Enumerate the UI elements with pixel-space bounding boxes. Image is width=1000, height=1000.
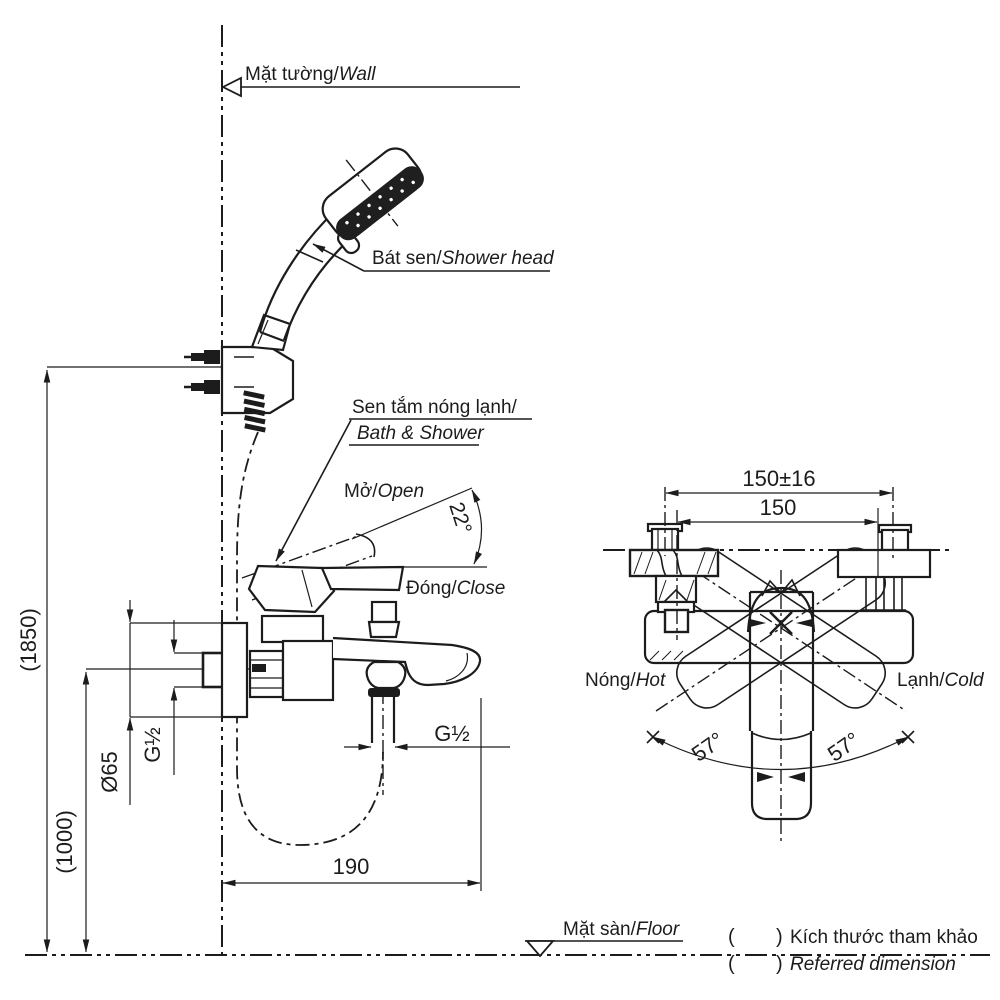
mixer-label-vi: Sen tắm nóng lạnh/	[352, 396, 518, 418]
dim-190-value: 190	[333, 854, 370, 879]
escutcheon	[222, 623, 247, 717]
dim-1000-value: (1000)	[52, 810, 77, 874]
connection-nut	[250, 651, 283, 697]
hot-label-vi: Nóng/	[585, 670, 636, 691]
mounting-screw-icon	[184, 380, 220, 394]
legend-paren-close: )	[776, 926, 783, 948]
faucet-installation-diagram: Mặt tường/Wall	[0, 0, 1000, 1000]
dimension-150: 150	[678, 495, 877, 522]
mixer-body-drawing	[86, 602, 480, 795]
spout-outlet-bell	[367, 662, 406, 688]
svg-text:Mặt sàn/Floor: Mặt sàn/Floor	[563, 919, 680, 940]
wall-arrow-icon	[223, 78, 241, 96]
mixer-label-en: Bath & Shower	[357, 423, 484, 444]
open-label-vi: Mở/	[344, 481, 378, 502]
dimension-150-16: 150±16	[666, 466, 892, 493]
swing-left-value: 57°	[687, 727, 729, 767]
dim-1850-value: (1850)	[16, 608, 41, 672]
svg-text:Mở/Open: Mở/Open	[344, 481, 424, 502]
top-view: 57° 57° 150±16 150 Nóng/Hot Lạnh/Cold	[585, 466, 985, 845]
legend-paren-close: )	[776, 953, 783, 975]
shower-head-drawing	[302, 128, 439, 261]
legend-paren-open: (	[728, 926, 735, 948]
dimension-dia65: Ø65	[97, 600, 224, 805]
shower-bracket	[47, 315, 293, 413]
dimension-g12-outlet: G½	[344, 721, 510, 747]
floor-level-icon	[527, 941, 553, 956]
dim-g12-outlet-value: G½	[434, 721, 469, 746]
swing-right-value: 57°	[823, 727, 865, 767]
svg-text:Lạnh/Cold: Lạnh/Cold	[897, 670, 985, 691]
close-label-vi: Đóng/	[406, 578, 457, 599]
legend-note-en: Referred dimension	[790, 954, 956, 975]
lever-handle-drawing: 22° Mở/Open Đóng/Close	[242, 481, 505, 612]
hot-label-en: Hot	[636, 670, 666, 691]
floor-label-en: Floor	[636, 919, 680, 940]
floor-label-vi: Mặt sàn/	[563, 919, 637, 940]
diverter-knob	[369, 602, 399, 637]
dim-150-value: 150	[760, 495, 797, 520]
dimension-1850: (1850)	[16, 370, 47, 952]
close-label-en: Close	[457, 578, 506, 599]
svg-text:Nóng/Hot: Nóng/Hot	[585, 670, 666, 691]
legend: ( ) Kích thước tham khảo ( ) Referred di…	[728, 926, 978, 975]
svg-text:Bát sen/Shower head: Bát sen/Shower head	[372, 248, 555, 269]
open-angle-value: 22°	[444, 499, 476, 536]
wall-label-vi: Mặt tường/	[245, 64, 340, 85]
wall-label: Mặt tường/Wall	[223, 64, 520, 96]
open-label-en: Open	[378, 481, 424, 502]
floor-label: Mặt sàn/Floor	[525, 919, 683, 956]
legend-paren-open: (	[728, 953, 735, 975]
dimension-1000: (1000)	[52, 672, 86, 952]
dim-150-16-value: 150±16	[742, 466, 815, 491]
handle-lever-closed	[322, 567, 403, 590]
mounting-screw-icon	[184, 350, 220, 364]
dim-g12-inlet-value: G½	[140, 727, 165, 762]
dim-dia65-value: Ø65	[97, 751, 122, 793]
dimension-g12-inlet: G½	[140, 620, 204, 775]
svg-text:Đóng/Close: Đóng/Close	[406, 578, 505, 599]
shower-head-label-en: Shower head	[442, 248, 555, 269]
mixer-label: Sen tắm nóng lạnh/ Bath & Shower	[276, 396, 532, 561]
aerator-ring	[368, 688, 400, 697]
cold-label-vi: Lạnh/	[897, 670, 945, 691]
shower-head-label-vi: Bát sen/	[372, 248, 442, 269]
wall-label-en: Wall	[339, 64, 376, 85]
svg-text:Mặt tường/Wall: Mặt tường/Wall	[245, 64, 376, 85]
handle-cap	[249, 566, 334, 612]
technical-drawing-page: Mặt tường/Wall	[0, 0, 1000, 1000]
legend-note-vi: Kích thước tham khảo	[790, 927, 978, 948]
wall-supply-stub	[203, 653, 223, 687]
cold-label-en: Cold	[945, 670, 986, 691]
spout	[333, 638, 480, 685]
